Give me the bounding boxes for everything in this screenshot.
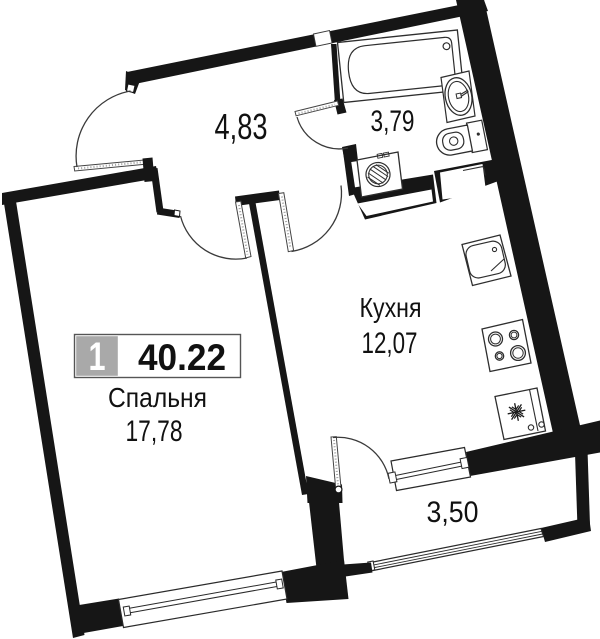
svg-text:Спальня: Спальня — [108, 382, 207, 413]
svg-text:40.22: 40.22 — [138, 337, 226, 378]
svg-text:12,07: 12,07 — [362, 327, 418, 360]
svg-text:1: 1 — [89, 335, 106, 379]
svg-text:Кухня: Кухня — [360, 292, 422, 323]
svg-text:3,50: 3,50 — [427, 496, 479, 529]
svg-text:4,83: 4,83 — [215, 106, 268, 147]
svg-text:3,79: 3,79 — [371, 105, 415, 138]
svg-text:17,78: 17,78 — [126, 415, 183, 448]
